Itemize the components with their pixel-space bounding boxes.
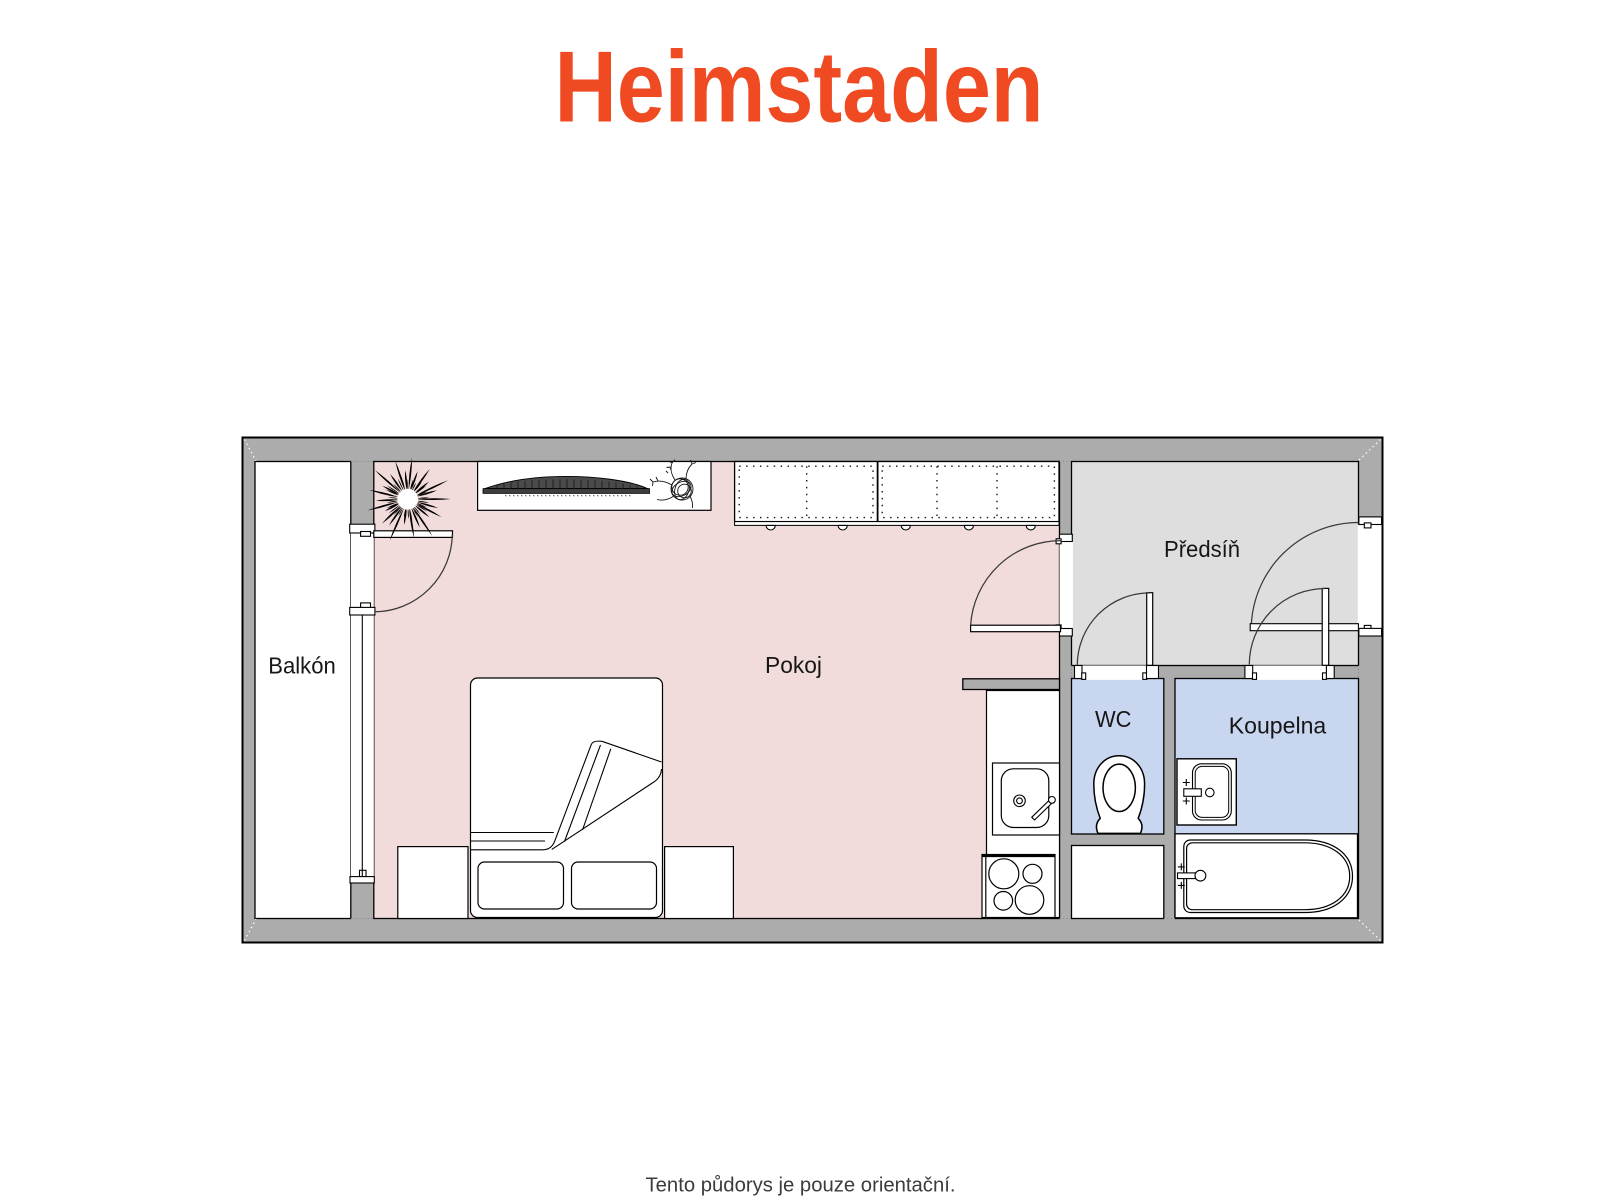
svg-text:Předsíň: Předsíň <box>1164 536 1240 562</box>
svg-text:WC: WC <box>1095 706 1132 732</box>
svg-text:Koupelna: Koupelna <box>1229 713 1327 739</box>
svg-text:Heimstaden: Heimstaden <box>555 30 1044 144</box>
svg-text:Pokoj: Pokoj <box>765 652 822 678</box>
svg-text:Balkón: Balkón <box>268 653 336 679</box>
svg-text:Tento půdorys je pouze orienta: Tento půdorys je pouze orientační. <box>646 1174 956 1197</box>
